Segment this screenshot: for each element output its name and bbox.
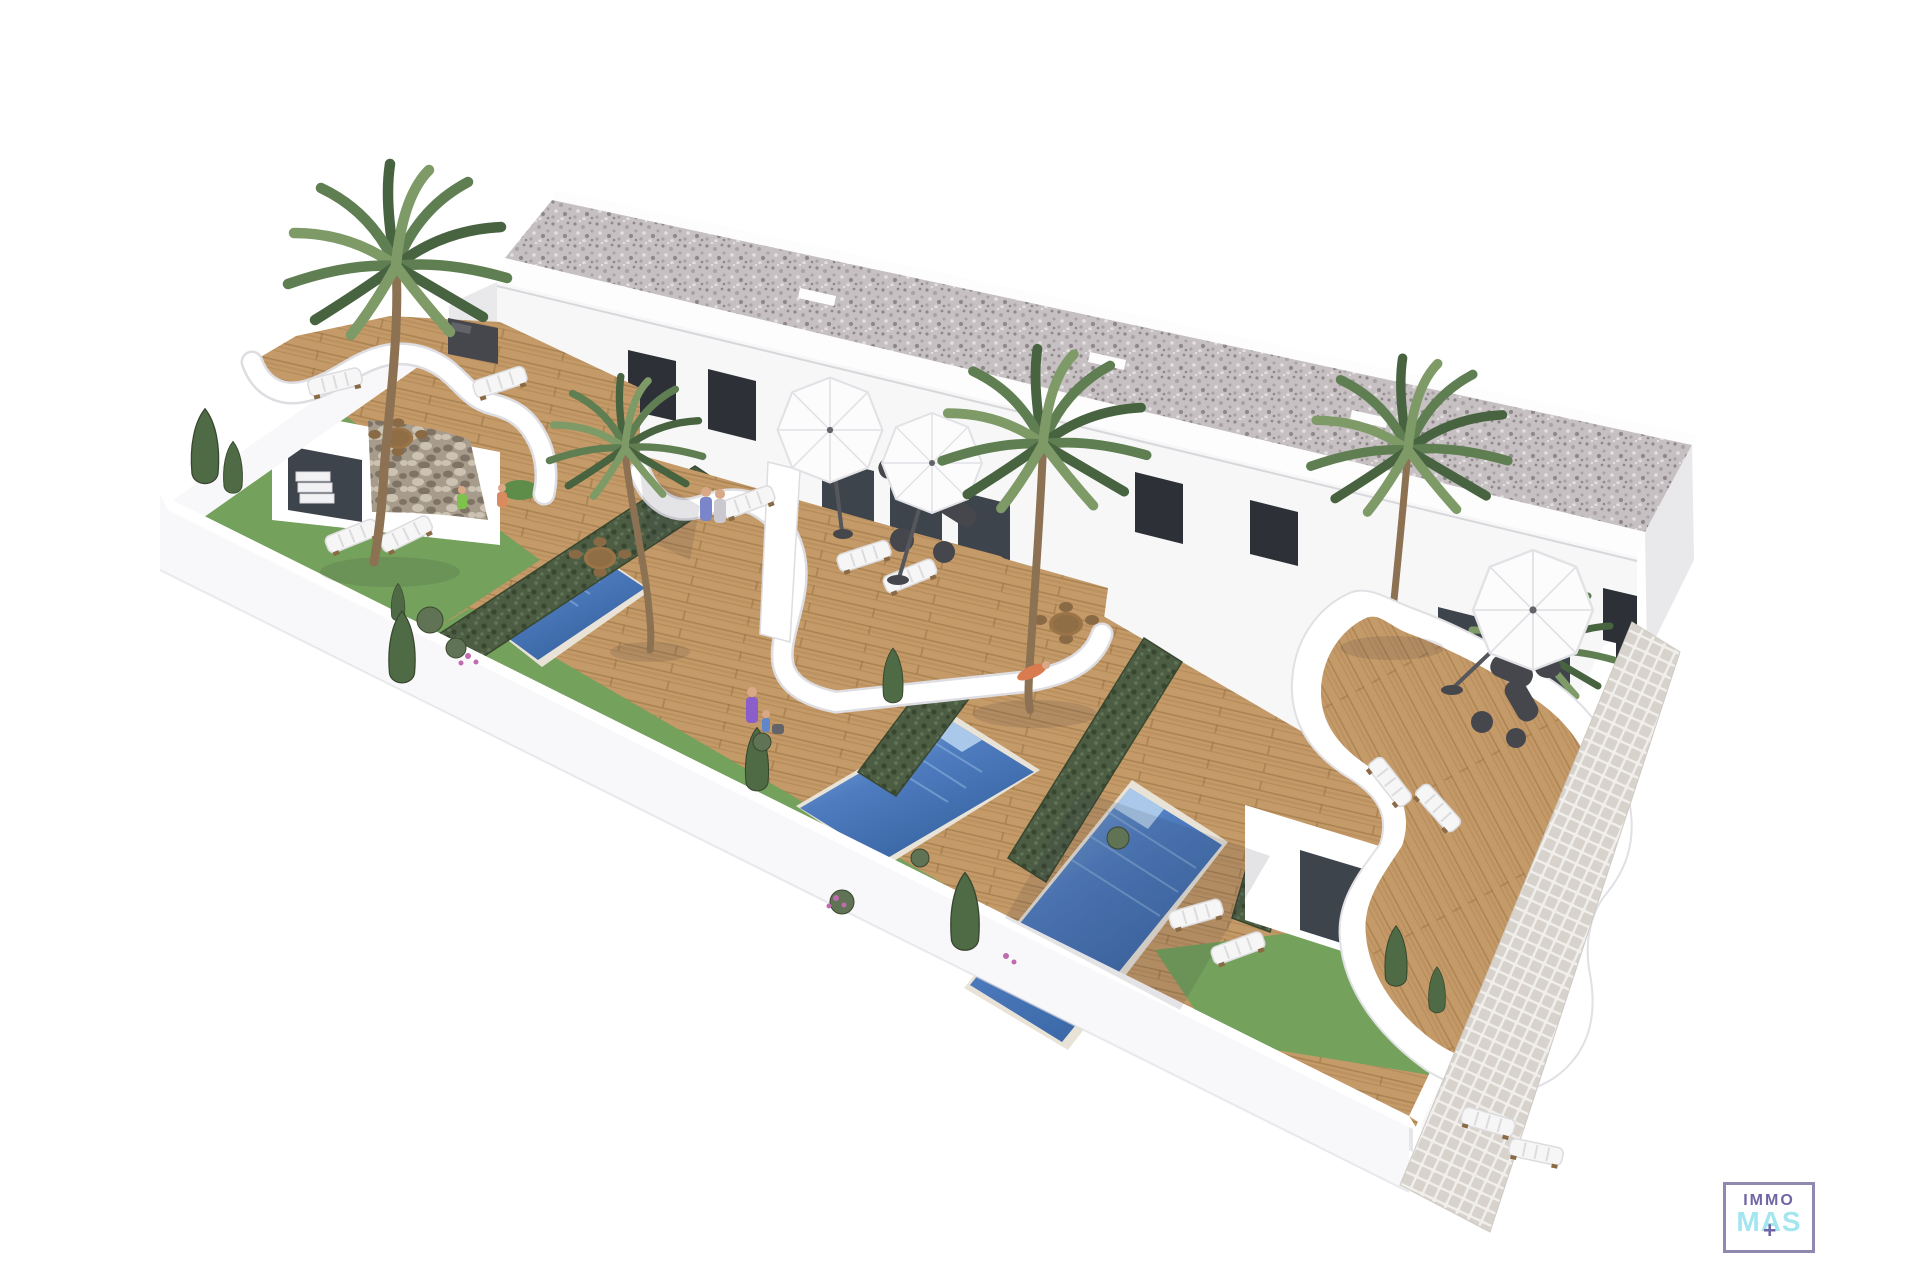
window [708, 369, 756, 441]
person-standing-green [457, 486, 467, 509]
window [1135, 472, 1183, 544]
scene-render [0, 0, 1920, 1280]
sun-lounger [1507, 1138, 1564, 1170]
lawn-bed [502, 480, 538, 500]
page: { "page": { "background": "#ffffff", "de… [0, 0, 1920, 1280]
logo-plus-icon: + [1763, 1219, 1777, 1242]
person-standing [497, 484, 507, 507]
logo-line-mas: MAS + [1726, 1210, 1812, 1234]
immo-mas-logo: IMMO MAS + [1723, 1182, 1815, 1253]
unit-1-steps [296, 472, 334, 503]
